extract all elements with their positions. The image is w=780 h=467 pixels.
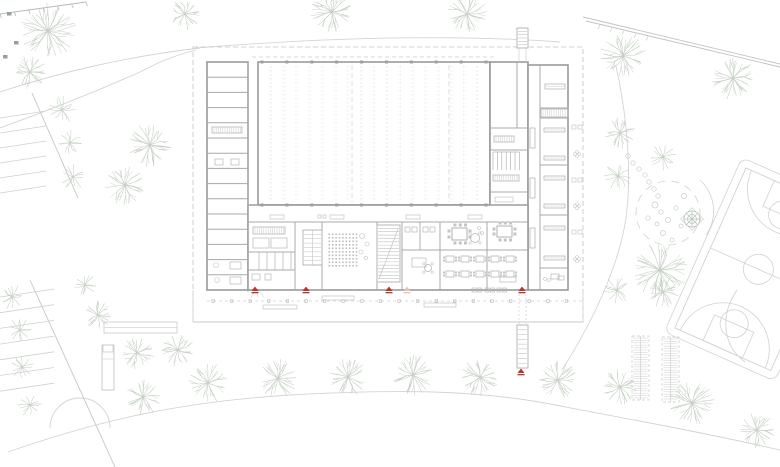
site-plan-drawing bbox=[0, 0, 780, 467]
site-plan-canvas bbox=[0, 0, 780, 467]
entrance-markers bbox=[252, 287, 526, 376]
playground bbox=[626, 154, 714, 245]
building-layer bbox=[207, 57, 568, 290]
